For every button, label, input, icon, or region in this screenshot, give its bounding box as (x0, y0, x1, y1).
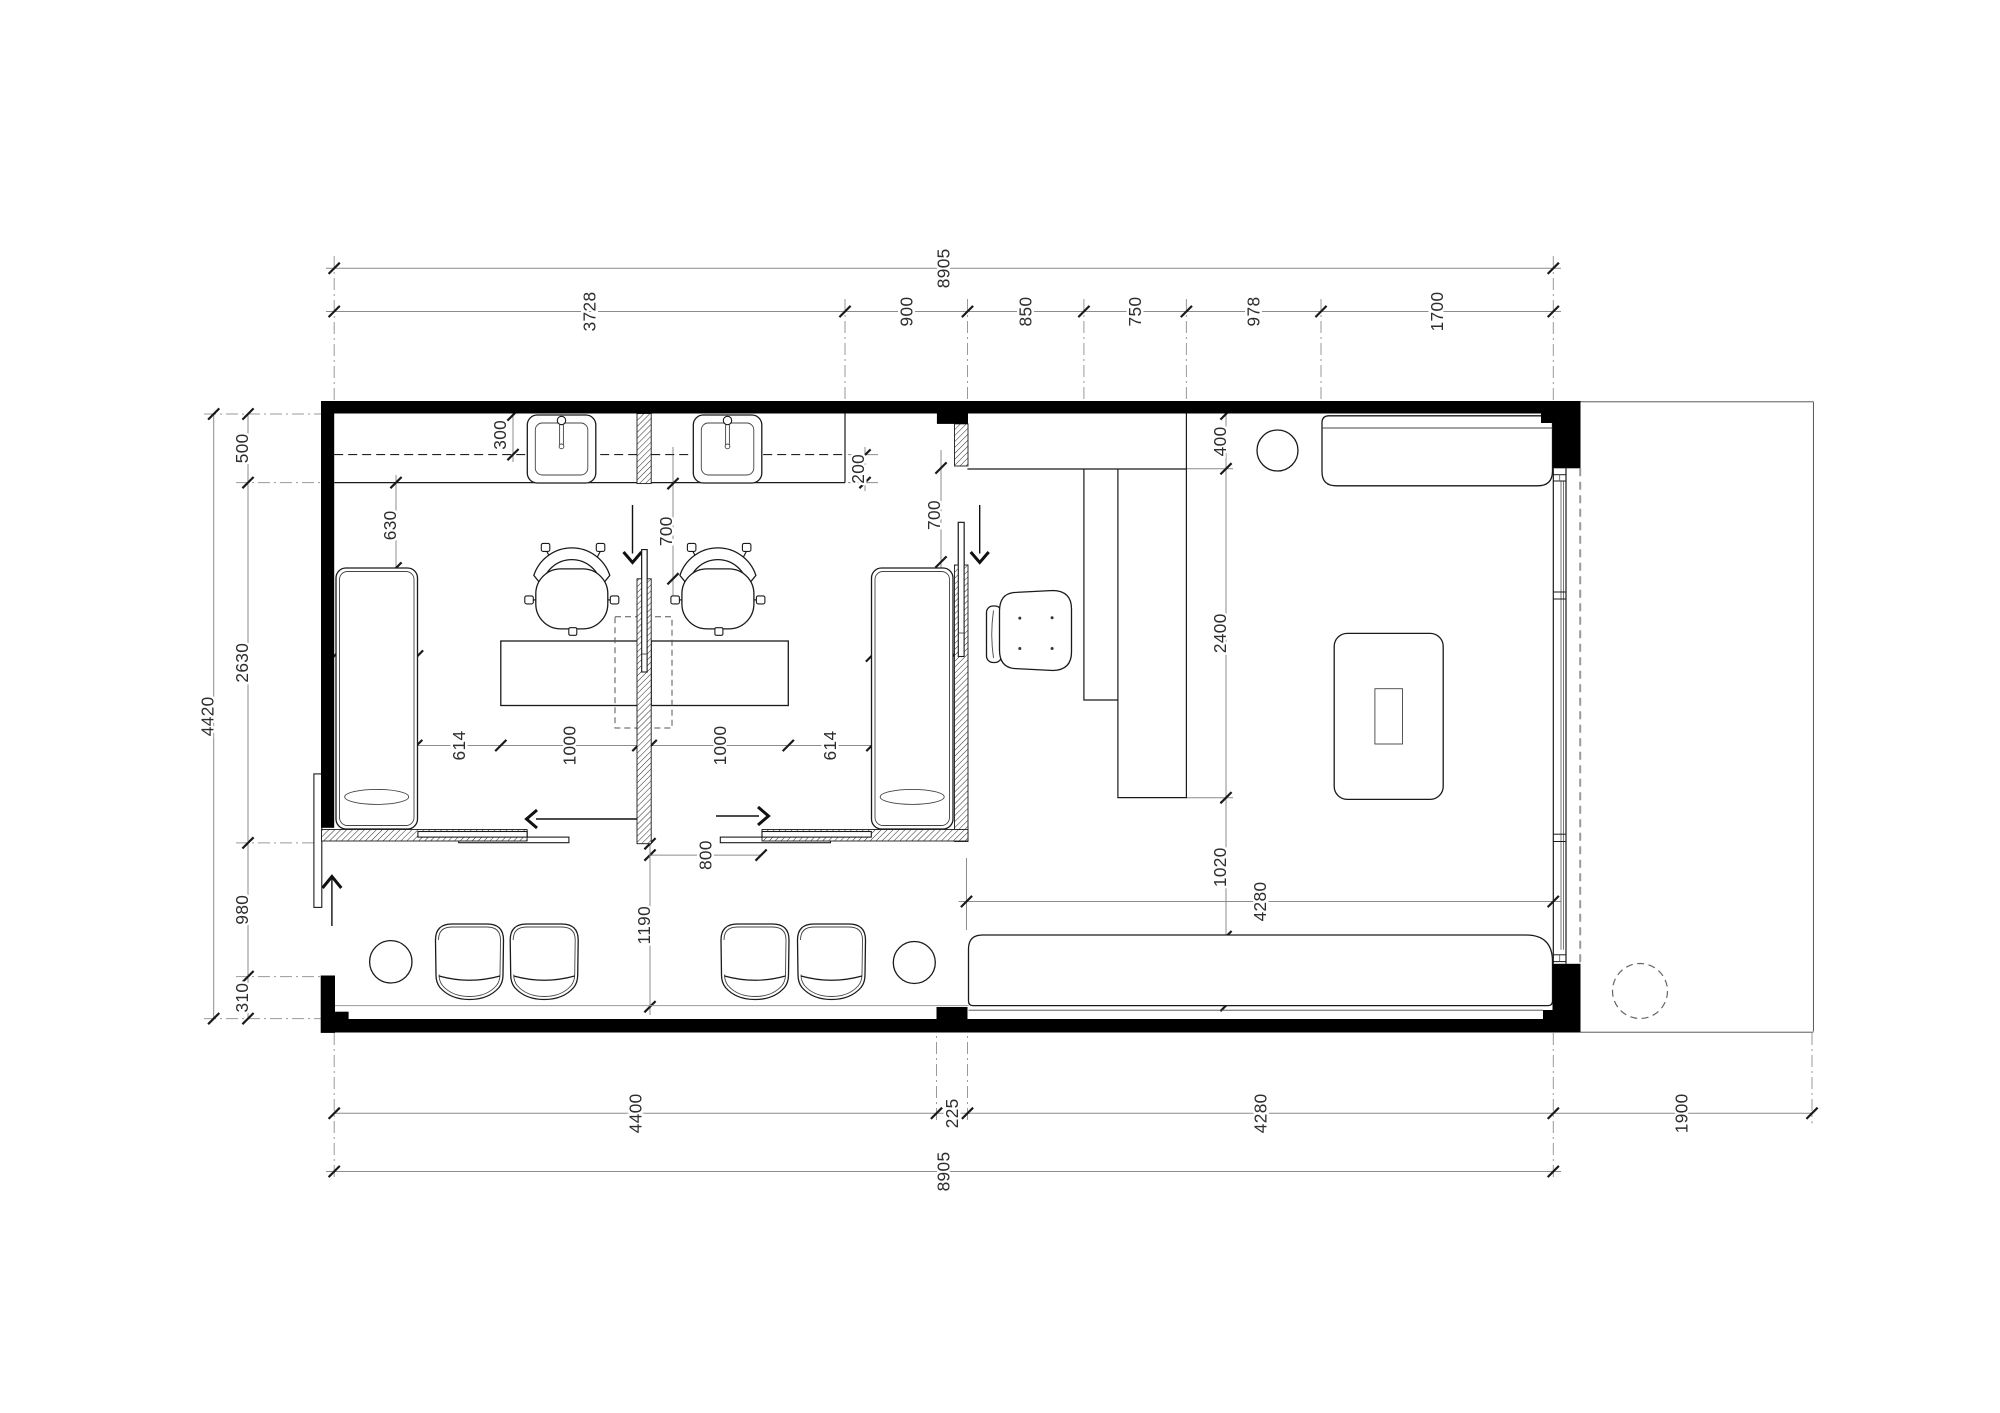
svg-text:614: 614 (820, 731, 840, 761)
svg-text:614: 614 (449, 731, 469, 761)
svg-text:4420: 4420 (198, 696, 218, 736)
svg-text:310: 310 (232, 983, 252, 1013)
svg-text:8905: 8905 (934, 1152, 954, 1192)
svg-text:978: 978 (1244, 297, 1264, 327)
svg-text:400: 400 (1210, 426, 1230, 456)
svg-text:300: 300 (490, 420, 510, 450)
svg-text:4400: 4400 (625, 1093, 645, 1133)
svg-text:4280: 4280 (1250, 882, 1270, 922)
svg-text:900: 900 (896, 297, 916, 327)
svg-text:1000: 1000 (710, 726, 730, 766)
svg-text:8905: 8905 (934, 248, 954, 288)
svg-text:225: 225 (942, 1098, 962, 1128)
svg-text:630: 630 (380, 510, 400, 540)
svg-text:750: 750 (1125, 297, 1145, 327)
svg-text:1000: 1000 (559, 726, 579, 766)
svg-text:2630: 2630 (232, 643, 252, 683)
svg-text:3728: 3728 (580, 292, 600, 332)
svg-text:980: 980 (232, 895, 252, 925)
svg-text:700: 700 (656, 516, 676, 546)
svg-text:1700: 1700 (1427, 292, 1447, 332)
svg-text:700: 700 (924, 500, 944, 530)
svg-text:800: 800 (696, 840, 716, 870)
svg-text:500: 500 (232, 433, 252, 463)
svg-text:1020: 1020 (1210, 847, 1230, 887)
svg-text:850: 850 (1016, 297, 1036, 327)
svg-text:1900: 1900 (1672, 1093, 1692, 1133)
svg-text:200: 200 (848, 454, 868, 484)
svg-text:1190: 1190 (634, 906, 654, 945)
svg-text:4280: 4280 (1250, 1093, 1270, 1133)
svg-text:2400: 2400 (1210, 613, 1230, 653)
